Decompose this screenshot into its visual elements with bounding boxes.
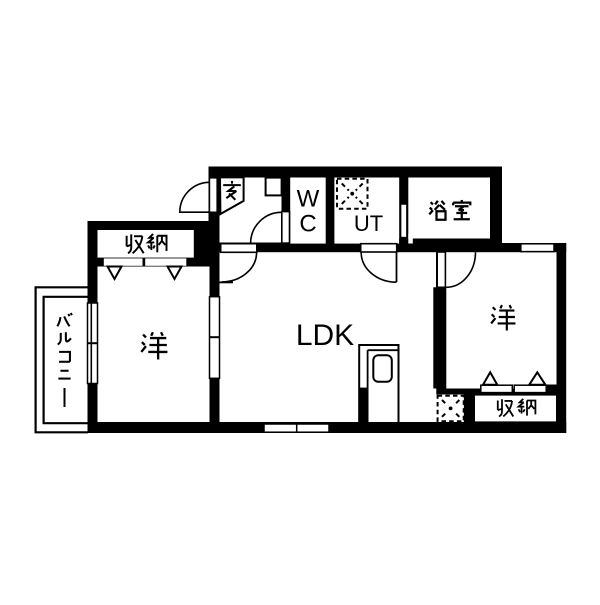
svg-text:W: W <box>297 186 320 213</box>
svg-text:LDK: LDK <box>296 319 354 352</box>
svg-text:UT: UT <box>354 211 383 236</box>
svg-text:C: C <box>299 211 316 238</box>
